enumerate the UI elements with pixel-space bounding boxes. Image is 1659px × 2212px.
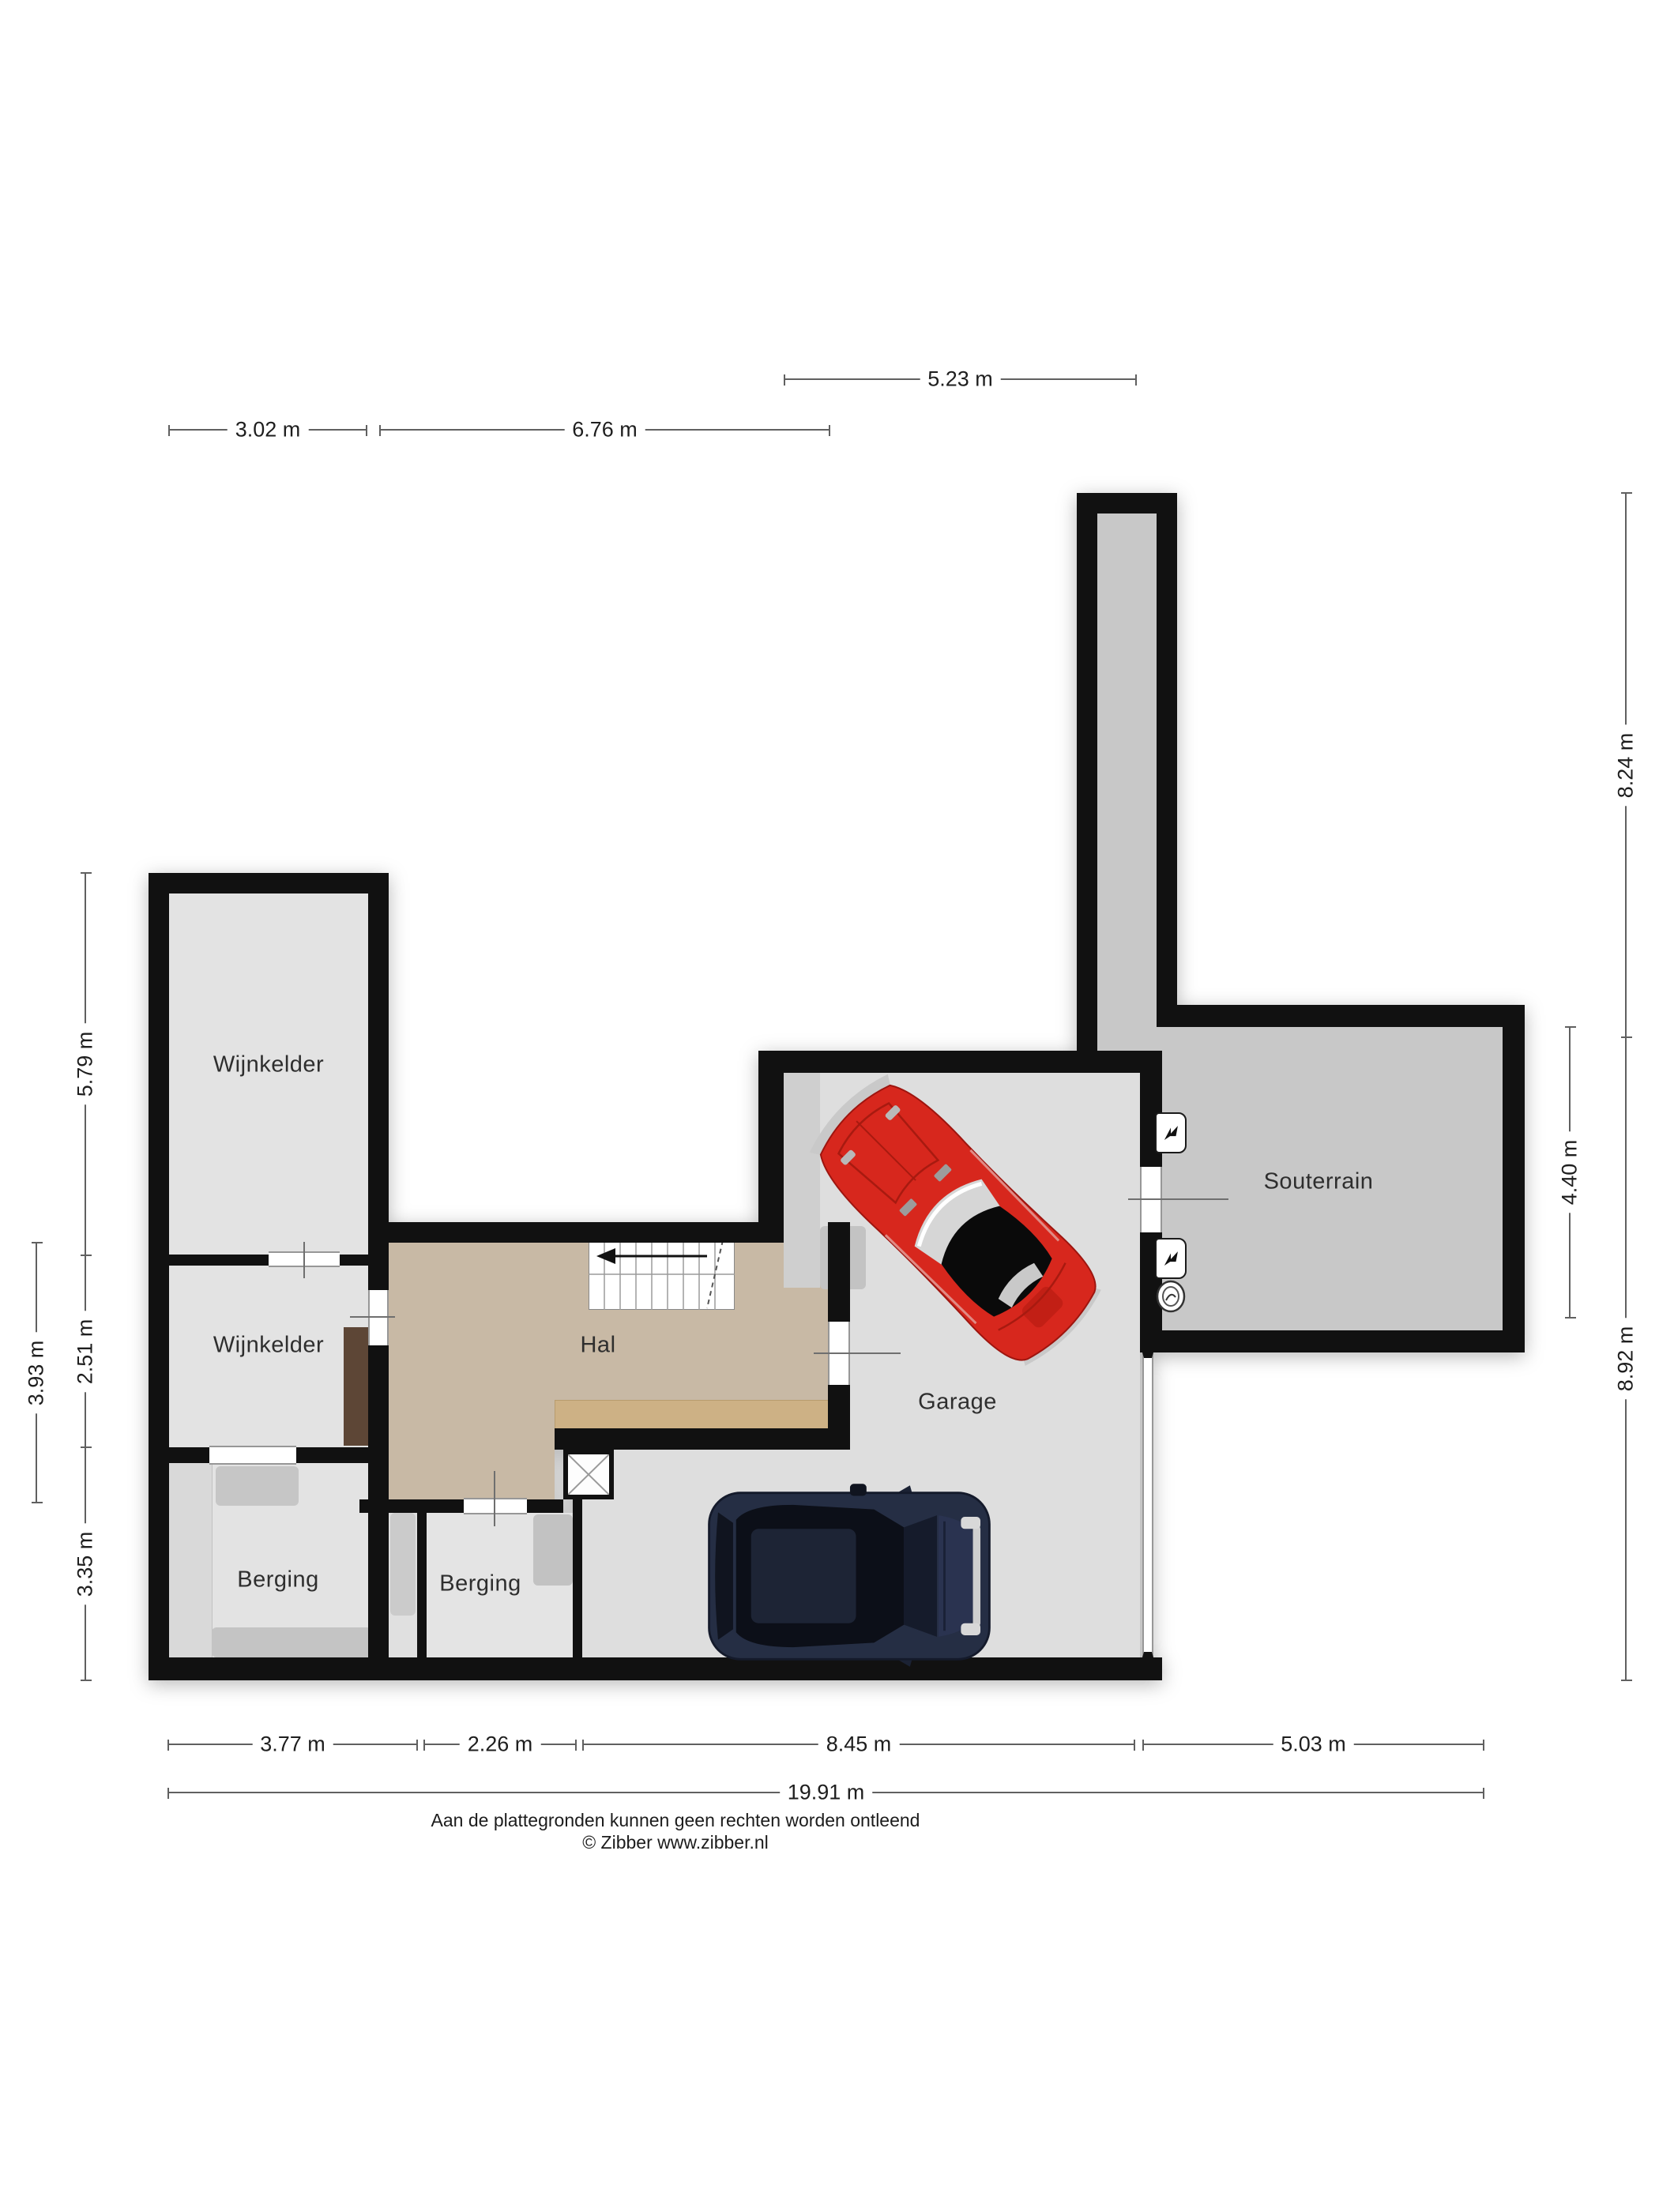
door-axis <box>814 1352 901 1354</box>
dim-left-5-79: 5.79 m <box>85 873 86 1255</box>
floorplan-canvas: Wijnkelder Wijnkelder Hal Berging Bergin… <box>0 0 1659 2212</box>
berging-left-cabinet-top <box>216 1466 299 1506</box>
wall <box>1157 493 1177 1005</box>
ventilation-unit-icon <box>1155 1112 1187 1153</box>
dim-right-4-40: 4.40 m <box>1569 1027 1571 1318</box>
door-opening-wijnkelder-hal <box>368 1290 389 1345</box>
wall <box>149 1657 1162 1680</box>
wall <box>417 1499 427 1657</box>
berging-left-workbench <box>169 1463 213 1657</box>
wall <box>1503 1005 1525 1352</box>
berging-left-cabinet-bottom <box>212 1627 371 1657</box>
passage-cabinet <box>390 1513 416 1616</box>
dim-top-3-02: 3.02 m <box>169 429 367 431</box>
door-axis <box>494 1471 495 1526</box>
room-label-wijnkelder-top: Wijnkelder <box>213 1052 324 1078</box>
door-opening-hal-berging <box>464 1498 527 1514</box>
hal-sideboard <box>555 1400 829 1430</box>
closet-hatched <box>563 1450 614 1499</box>
wall <box>368 1222 784 1243</box>
wall <box>758 1051 1162 1073</box>
wall <box>555 1428 850 1450</box>
wall <box>149 873 389 893</box>
footer-copyright: © Zibber www.zibber.nl <box>431 1831 920 1853</box>
ventilation-unit-icon <box>1155 1238 1187 1279</box>
wall <box>149 873 169 1680</box>
room-label-hal: Hal <box>580 1333 615 1359</box>
footer: Aan de plattegronden kunnen geen rechten… <box>431 1809 920 1853</box>
door-opening-wijnkelder-berging <box>209 1446 296 1465</box>
wall <box>1140 1330 1525 1352</box>
room-label-souterrain: Souterrain <box>1264 1169 1374 1195</box>
suv-car <box>703 1481 995 1671</box>
corridor-floor <box>1097 513 1157 1051</box>
dim-left-2-51: 2.51 m <box>85 1255 86 1447</box>
dim-bottom-5-03: 5.03 m <box>1143 1744 1484 1745</box>
meter-icon <box>1155 1280 1187 1313</box>
dim-right-8-92: 8.92 m <box>1625 1037 1627 1680</box>
room-label-garage: Garage <box>918 1390 997 1416</box>
garage-door-opening <box>1142 1352 1153 1657</box>
dim-top-6-76: 6.76 m <box>380 429 829 431</box>
dim-left-3-35: 3.35 m <box>85 1447 86 1680</box>
dim-bottom-2-26: 2.26 m <box>424 1744 576 1745</box>
wall <box>359 1499 563 1513</box>
room-label-berging-middle: Berging <box>439 1571 521 1597</box>
wall <box>758 1051 784 1243</box>
hal-floor-lower <box>389 1428 555 1499</box>
dim-right-8-24: 8.24 m <box>1625 493 1627 1037</box>
door-axis <box>350 1316 395 1318</box>
room-label-berging-left: Berging <box>237 1567 318 1593</box>
wijnkelder-cabinet-wood <box>344 1327 368 1446</box>
door-axis <box>1128 1198 1228 1200</box>
dim-bottom-total: 19.91 m <box>168 1792 1484 1793</box>
building: Wijnkelder Wijnkelder Hal Berging Bergin… <box>0 0 1659 2212</box>
dim-bottom-8-45: 8.45 m <box>583 1744 1134 1745</box>
stairs <box>589 1239 735 1310</box>
wall <box>1157 1005 1525 1027</box>
wall <box>1077 493 1097 1051</box>
dim-top-5-23: 5.23 m <box>784 378 1136 380</box>
room-label-wijnkelder-bottom: Wijnkelder <box>213 1333 324 1359</box>
footer-disclaimer: Aan de plattegronden kunnen geen rechten… <box>431 1809 920 1831</box>
door-axis <box>303 1242 305 1278</box>
dim-left-outer-3-93: 3.93 m <box>36 1243 37 1503</box>
dim-bottom-3-77: 3.77 m <box>168 1744 417 1745</box>
wall <box>1077 493 1177 513</box>
berging-middle-cabinet <box>533 1514 573 1586</box>
wall <box>368 873 389 1657</box>
